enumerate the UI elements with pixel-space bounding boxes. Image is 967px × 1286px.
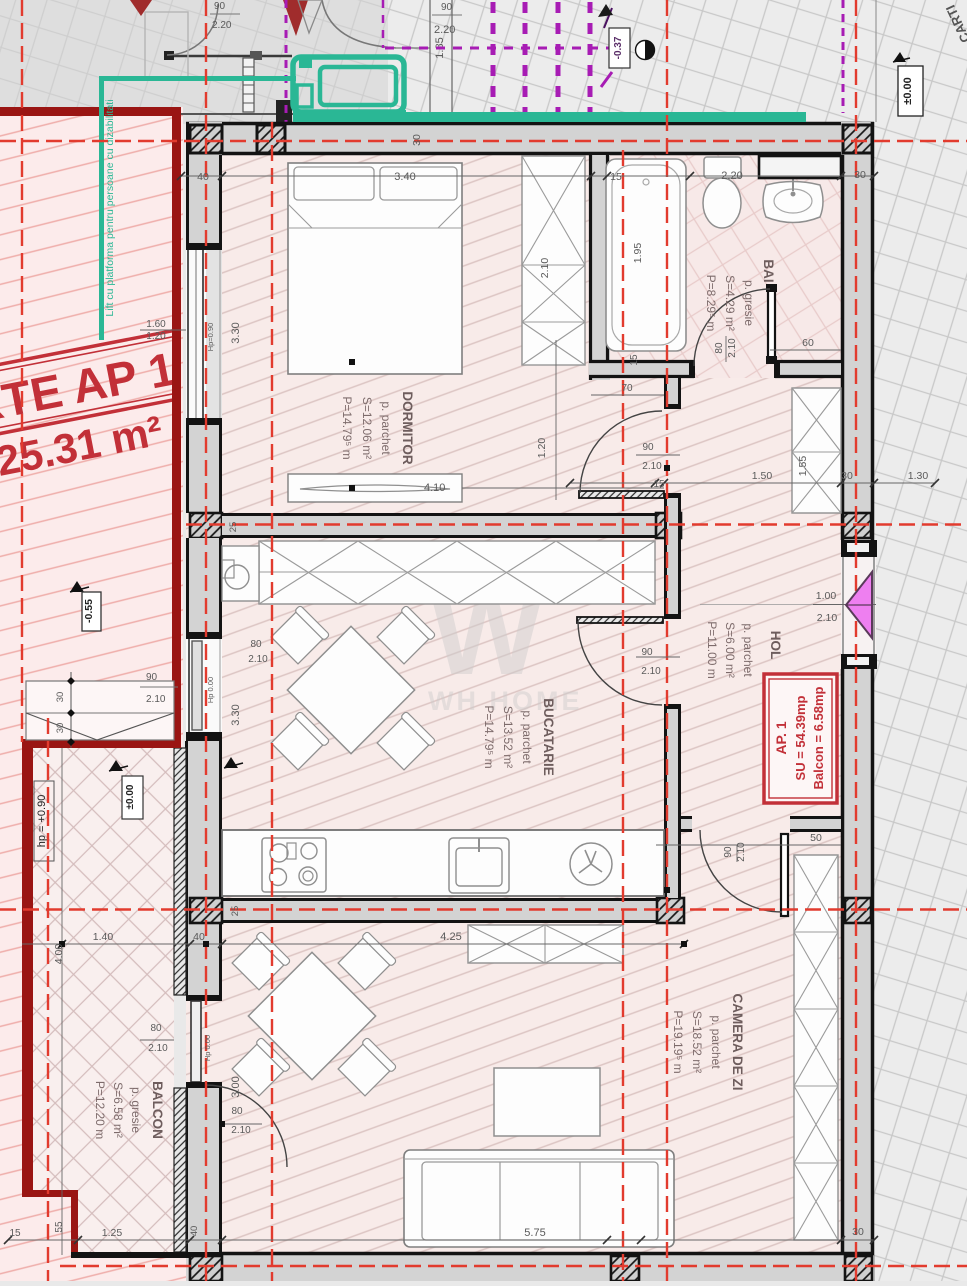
svg-text:p. gresie: p. gresie — [742, 280, 756, 326]
svg-text:1.55: 1.55 — [797, 456, 809, 477]
svg-text:p. parchet: p. parchet — [520, 710, 534, 764]
svg-text:40: 40 — [189, 1226, 200, 1237]
svg-text:80: 80 — [231, 1106, 243, 1117]
svg-text:BALCON: BALCON — [150, 1081, 165, 1139]
svg-text:25: 25 — [228, 522, 239, 533]
svg-text:25: 25 — [230, 906, 241, 917]
svg-text:4.25: 4.25 — [440, 931, 461, 943]
svg-text:S=6.00 m²: S=6.00 m² — [723, 622, 737, 678]
svg-text:P=11.00 m: P=11.00 m — [705, 621, 719, 678]
svg-text:2.20: 2.20 — [212, 20, 232, 31]
svg-text:±0.00: ±0.00 — [902, 77, 914, 104]
svg-text:S=6.58 m²: S=6.58 m² — [111, 1082, 125, 1138]
svg-text:1.25: 1.25 — [102, 1227, 123, 1239]
svg-text:30: 30 — [841, 470, 853, 482]
svg-text:1.95: 1.95 — [632, 243, 644, 264]
svg-text:30: 30 — [55, 692, 66, 703]
svg-text:S=4.29 m²: S=4.29 m² — [723, 275, 737, 331]
svg-text:2.10: 2.10 — [146, 694, 166, 705]
svg-text:hp = +0.90: hp = +0.90 — [36, 795, 48, 848]
svg-text:4.10: 4.10 — [424, 482, 445, 494]
svg-text:S=12.06 m²: S=12.06 m² — [360, 397, 374, 459]
svg-text:40: 40 — [197, 171, 209, 183]
svg-text:90: 90 — [441, 2, 453, 13]
svg-text:1.50: 1.50 — [752, 470, 773, 482]
svg-text:BUCATARIE: BUCATARIE — [541, 698, 556, 776]
svg-text:3.40: 3.40 — [394, 171, 415, 183]
svg-text:HOL: HOL — [768, 631, 783, 660]
svg-text:P=12.20 m: P=12.20 m — [93, 1081, 107, 1139]
svg-text:Hp 0.00: Hp 0.00 — [206, 677, 215, 703]
svg-text:15: 15 — [629, 354, 640, 366]
svg-text:4.00: 4.00 — [53, 944, 65, 965]
svg-text:1.60: 1.60 — [146, 319, 166, 330]
svg-text:80: 80 — [714, 342, 725, 354]
svg-text:2.10: 2.10 — [736, 842, 747, 862]
svg-text:40: 40 — [193, 931, 205, 943]
svg-text:SU = 54.39mp: SU = 54.39mp — [793, 695, 808, 780]
svg-text:90: 90 — [146, 672, 158, 683]
svg-text:DORMITOR: DORMITOR — [400, 391, 415, 464]
svg-text:-0.37: -0.37 — [613, 36, 624, 59]
svg-text:P=14.79⁵ m: P=14.79⁵ m — [340, 396, 354, 459]
svg-text:2.10: 2.10 — [539, 258, 551, 279]
svg-text:30: 30 — [854, 169, 866, 181]
svg-text:2.10: 2.10 — [641, 666, 661, 677]
svg-text:90: 90 — [642, 442, 654, 453]
svg-text:5.75: 5.75 — [524, 1227, 545, 1239]
svg-text:1.20: 1.20 — [146, 331, 166, 342]
svg-text:3.30: 3.30 — [230, 704, 242, 725]
svg-text:30: 30 — [55, 723, 66, 734]
svg-text:P=19.19⁵ m: P=19.19⁵ m — [671, 1010, 685, 1073]
svg-text:±0.00: ±0.00 — [125, 784, 136, 809]
svg-text:2.10: 2.10 — [231, 1125, 251, 1136]
svg-text:p. gresie: p. gresie — [129, 1087, 143, 1133]
svg-text:2.10: 2.10 — [727, 338, 738, 358]
svg-text:S=13.52 m²: S=13.52 m² — [501, 706, 515, 768]
svg-text:30: 30 — [852, 1226, 864, 1238]
svg-text:3.30: 3.30 — [230, 322, 242, 343]
svg-text:2.10: 2.10 — [248, 654, 268, 665]
svg-text:Hp=0.90: Hp=0.90 — [206, 323, 215, 352]
svg-text:1.30: 1.30 — [908, 470, 929, 482]
svg-text:2.10: 2.10 — [148, 1043, 168, 1054]
svg-text:80: 80 — [150, 1023, 162, 1034]
svg-text:2.20: 2.20 — [721, 170, 742, 182]
svg-text:Lift cu platforma pentru perso: Lift cu platforma pentru persoane cu diz… — [104, 99, 116, 316]
svg-text:3.00: 3.00 — [230, 1076, 242, 1097]
svg-text:30: 30 — [411, 134, 423, 146]
svg-text:1.40: 1.40 — [93, 931, 114, 943]
svg-text:80: 80 — [250, 639, 262, 650]
svg-text:90: 90 — [214, 1, 226, 12]
svg-text:P=8.29⁵ m: P=8.29⁵ m — [704, 275, 718, 332]
svg-text:2.10: 2.10 — [817, 612, 838, 624]
svg-text:15: 15 — [9, 1228, 21, 1239]
svg-text:S=18.52 m²: S=18.52 m² — [690, 1011, 704, 1073]
svg-text:AP. 1: AP. 1 — [773, 721, 789, 754]
svg-text:90: 90 — [641, 647, 653, 658]
svg-text:1.20: 1.20 — [536, 438, 548, 459]
svg-text:p. parchet: p. parchet — [741, 623, 755, 677]
svg-text:P=14.79⁵ m: P=14.79⁵ m — [482, 705, 496, 768]
svg-text:-0.55: -0.55 — [83, 599, 95, 623]
svg-text:p. parchet: p. parchet — [709, 1015, 723, 1069]
svg-text:15: 15 — [653, 479, 665, 490]
svg-text:BAI: BAI — [761, 259, 776, 282]
svg-text:15: 15 — [610, 171, 622, 183]
svg-text:60: 60 — [802, 337, 814, 349]
svg-text:90: 90 — [723, 846, 734, 858]
svg-text:Hp 0.00: Hp 0.00 — [203, 1035, 212, 1061]
svg-text:Balcon = 6.58mp: Balcon = 6.58mp — [811, 686, 826, 789]
svg-text:p. parchet: p. parchet — [379, 401, 393, 455]
svg-text:70: 70 — [621, 383, 633, 394]
svg-text:2.10: 2.10 — [642, 461, 662, 472]
svg-text:CAMERA DE ZI: CAMERA DE ZI — [730, 994, 745, 1091]
svg-text:50: 50 — [810, 832, 822, 844]
svg-text:55: 55 — [54, 1221, 65, 1233]
svg-text:1.00: 1.00 — [816, 590, 837, 602]
